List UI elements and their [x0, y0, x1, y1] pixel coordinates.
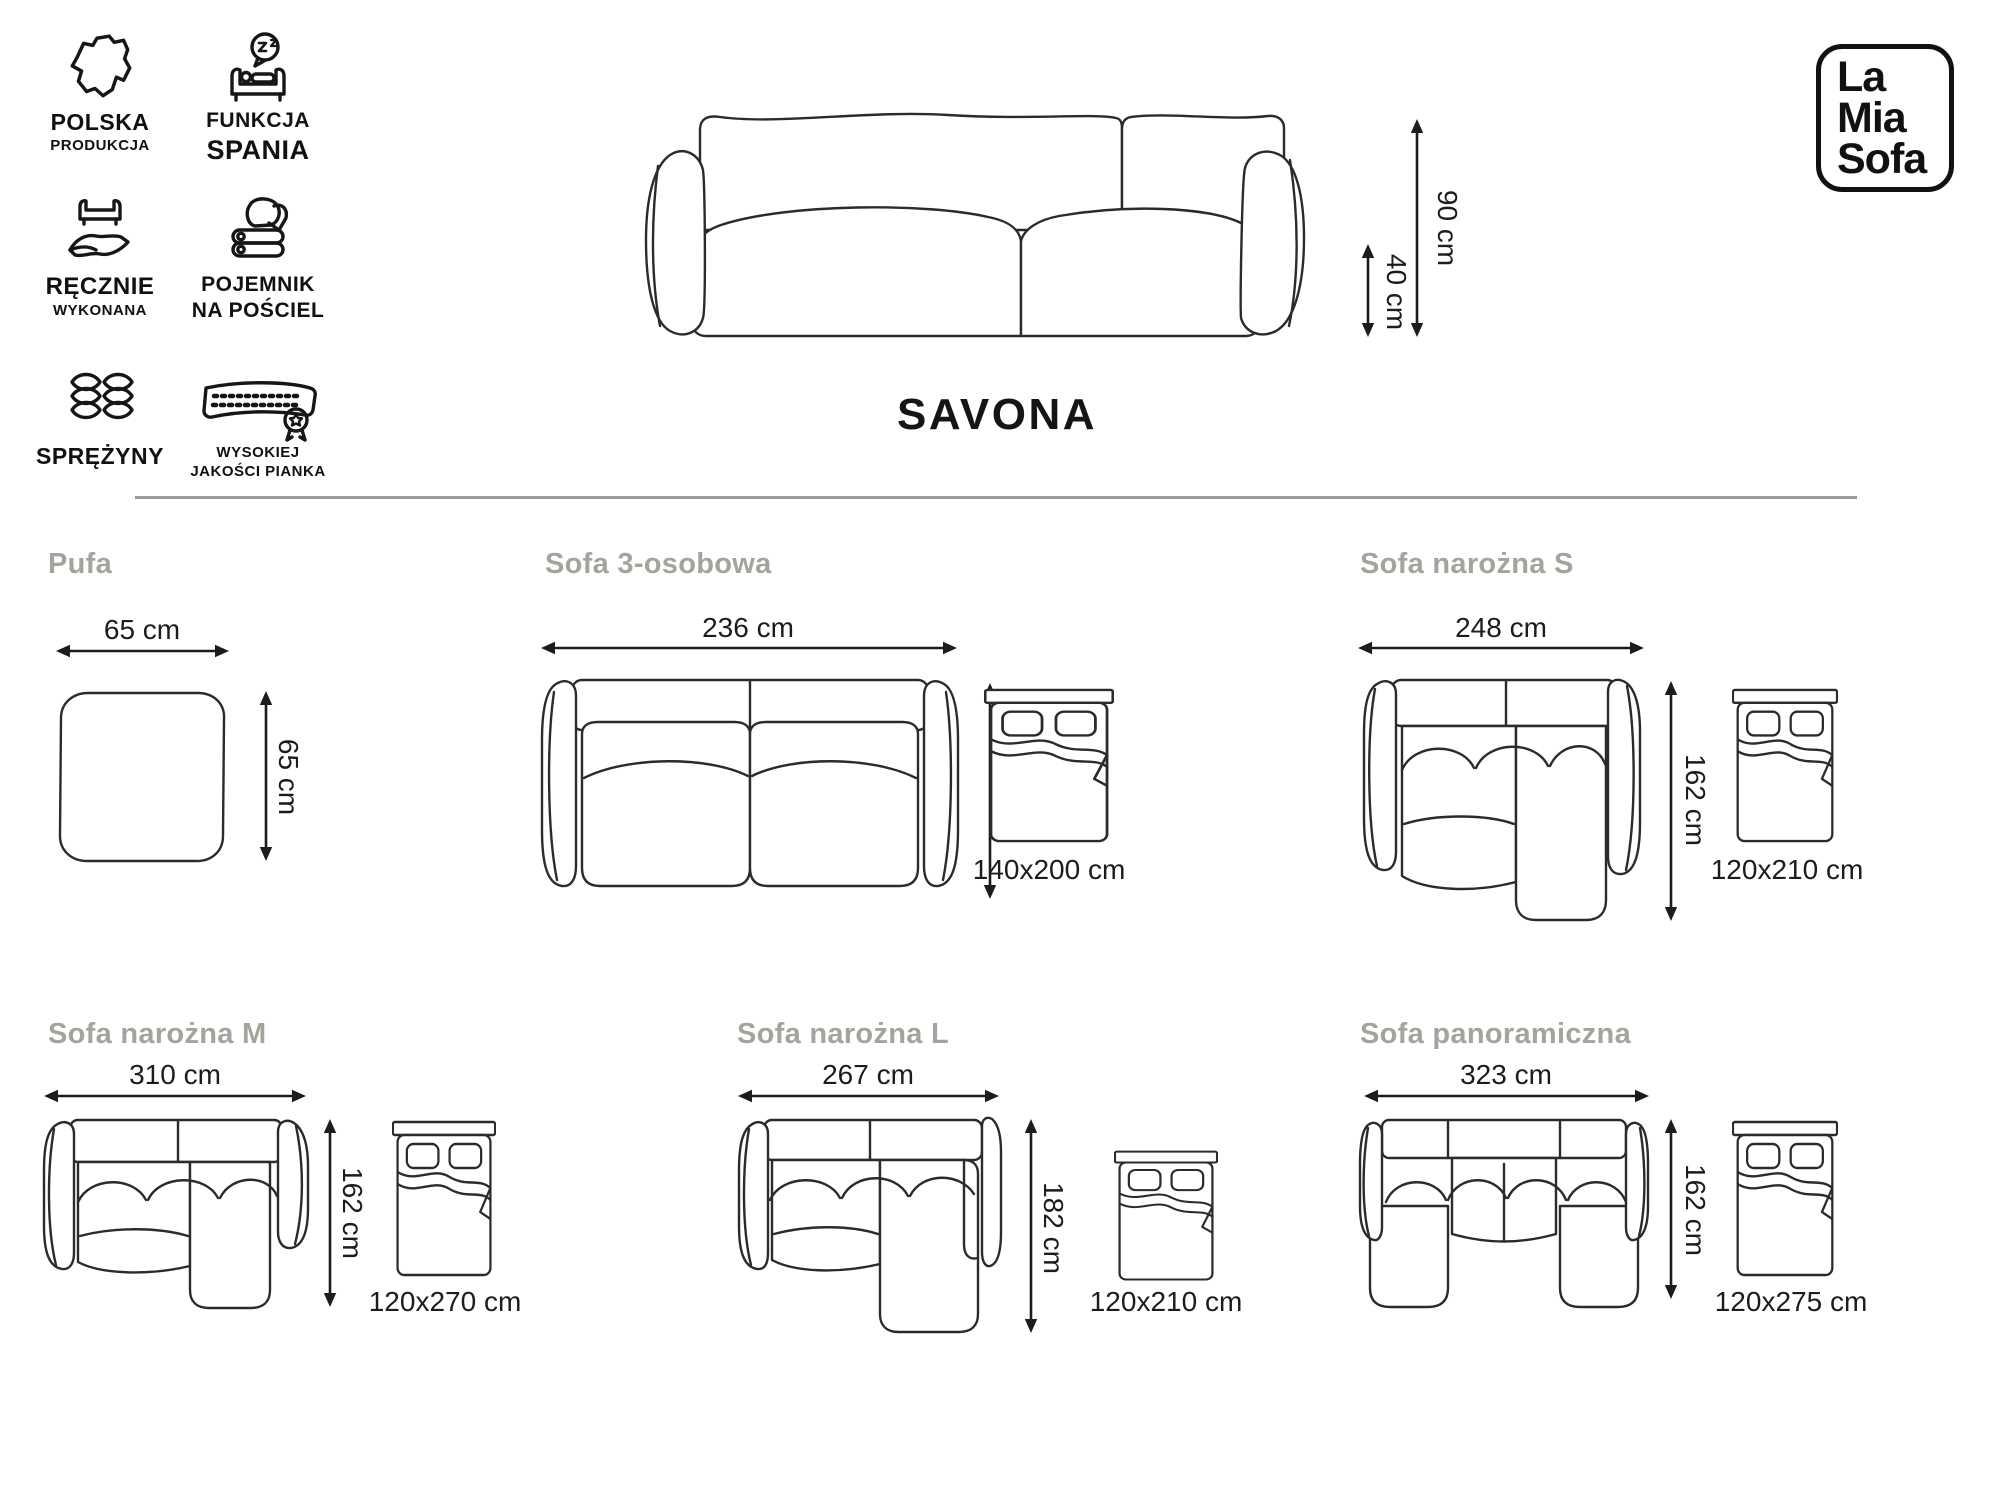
- variant-sofa-panoramiczna: Sofa panoramiczna 323 cm: [1350, 1000, 1970, 1430]
- badge-label: POJEMNIK: [201, 272, 315, 298]
- sofa-top-view-drawing: [538, 670, 962, 904]
- bedding-storage-icon: [216, 192, 300, 272]
- springs-icon: [58, 368, 142, 442]
- sleep-function-icon: [216, 30, 300, 108]
- badge-sublabel: PRODUKCJA: [50, 137, 150, 156]
- variant-title: Sofa 3-osobowa: [545, 548, 772, 581]
- badge-sprezyny: SPRĘŻYNY: [15, 368, 185, 471]
- foam-quality-icon: [194, 368, 322, 444]
- bed-size-label: 120x210 cm: [1711, 854, 1864, 886]
- panoramic-sofa-top-view-drawing: [1356, 1114, 1652, 1314]
- badge-pojemnik-na-posciel: POJEMNIK NA POŚCIEL: [173, 192, 343, 325]
- bed-size-label: 120x210 cm: [1090, 1286, 1243, 1318]
- width-arrow: [43, 1087, 307, 1105]
- variant-title: Sofa narożna M: [48, 1018, 267, 1051]
- bed-size-icon: [1732, 1120, 1838, 1278]
- bed-size-icon: [392, 1120, 496, 1278]
- savona-dimension-sheet: { "brand": {"line1": "La", "line2": "Mia…: [0, 0, 2000, 1500]
- depth-dimension-label: 162 cm: [1679, 754, 1711, 846]
- badge-label: FUNKCJA: [206, 108, 310, 134]
- depth-dimension-label: 162 cm: [1679, 1164, 1711, 1256]
- width-arrow: [55, 642, 230, 660]
- depth-dimension-label: 182 cm: [1037, 1182, 1069, 1274]
- width-arrow: [1357, 639, 1645, 657]
- main-sofa-front-view-drawing: [628, 98, 1338, 348]
- bed-size-icon: [1732, 688, 1838, 844]
- bed-size-label: 140x200 cm: [973, 854, 1126, 886]
- brand-logo: La Mia Sofa: [1816, 44, 1954, 192]
- brand-logo-line: Sofa: [1837, 139, 1949, 180]
- variant-title: Sofa narożna L: [737, 1018, 949, 1051]
- badge-label: POLSKA: [51, 108, 150, 137]
- variant-title: Pufa: [48, 548, 112, 581]
- depth-dimension-label: 162 cm: [336, 1167, 368, 1259]
- badge-label: SPRĘŻYNY: [36, 442, 164, 471]
- width-arrow: [737, 1087, 1000, 1105]
- corner-sofa-top-view-drawing: [734, 1114, 1006, 1342]
- variant-sofa-narozna-s: Sofa narożna S 248 cm 162 cm: [1350, 545, 1970, 935]
- bed-size-label: 120x270 cm: [369, 1286, 522, 1318]
- handmade-icon: [58, 192, 142, 272]
- badge-label: WYSOKIEJ: [216, 444, 299, 463]
- width-arrow: [1363, 1087, 1650, 1105]
- poland-map-icon: [59, 30, 141, 108]
- bed-size-icon: [984, 688, 1114, 844]
- depth-arrow: [1662, 680, 1680, 922]
- badge-recznie-wykonana: RĘCZNIE WYKONANA: [15, 192, 185, 321]
- variant-sofa-narozna-m: Sofa narożna M 310 cm 162 cm: [30, 1000, 540, 1420]
- seat-height-dimension-label: 40 cm: [1380, 254, 1412, 330]
- seat-height-arrow: [1359, 243, 1377, 338]
- variant-sofa-narozna-l: Sofa narożna L 267 cm 182 cm: [720, 1000, 1250, 1430]
- variant-sofa-3-osobowa: Sofa 3-osobowa 236 cm 105 cm: [530, 545, 1230, 935]
- variant-pufa: Pufa 65 cm 65 cm: [30, 545, 360, 925]
- corner-sofa-top-view-drawing: [38, 1114, 314, 1314]
- bed-size-icon: [1114, 1150, 1218, 1282]
- section-divider: [135, 496, 1857, 499]
- brand-logo-line: La: [1837, 57, 1949, 98]
- badge-wysokiej-jakosci-pianka: WYSOKIEJ JAKOŚCI PIANKA: [173, 368, 343, 482]
- variant-title: Sofa panoramiczna: [1360, 1018, 1631, 1051]
- badge-sublabel: NA POŚCIEL: [192, 298, 325, 324]
- height-dimension-label: 90 cm: [1431, 190, 1463, 266]
- badge-sublabel: SPANIA: [206, 134, 309, 168]
- badge-sublabel: WYKONANA: [53, 302, 147, 321]
- pufa-top-view-drawing: [52, 688, 232, 866]
- variant-title: Sofa narożna S: [1360, 548, 1574, 581]
- badge-sublabel: JAKOŚCI PIANKA: [190, 463, 325, 482]
- depth-arrow: [1662, 1118, 1680, 1300]
- corner-sofa-top-view-drawing: [1356, 672, 1648, 926]
- badge-label: RĘCZNIE: [46, 272, 155, 302]
- width-arrow: [540, 639, 958, 657]
- depth-dimension-label: 65 cm: [272, 739, 304, 815]
- badge-polska-produkcja: POLSKA PRODUKCJA: [15, 30, 185, 156]
- brand-logo-line: Mia: [1837, 98, 1949, 139]
- badge-funkcja-spania: FUNKCJA SPANIA: [173, 30, 343, 168]
- page-title: SAVONA: [897, 390, 1097, 440]
- bed-size-label: 120x275 cm: [1715, 1286, 1868, 1318]
